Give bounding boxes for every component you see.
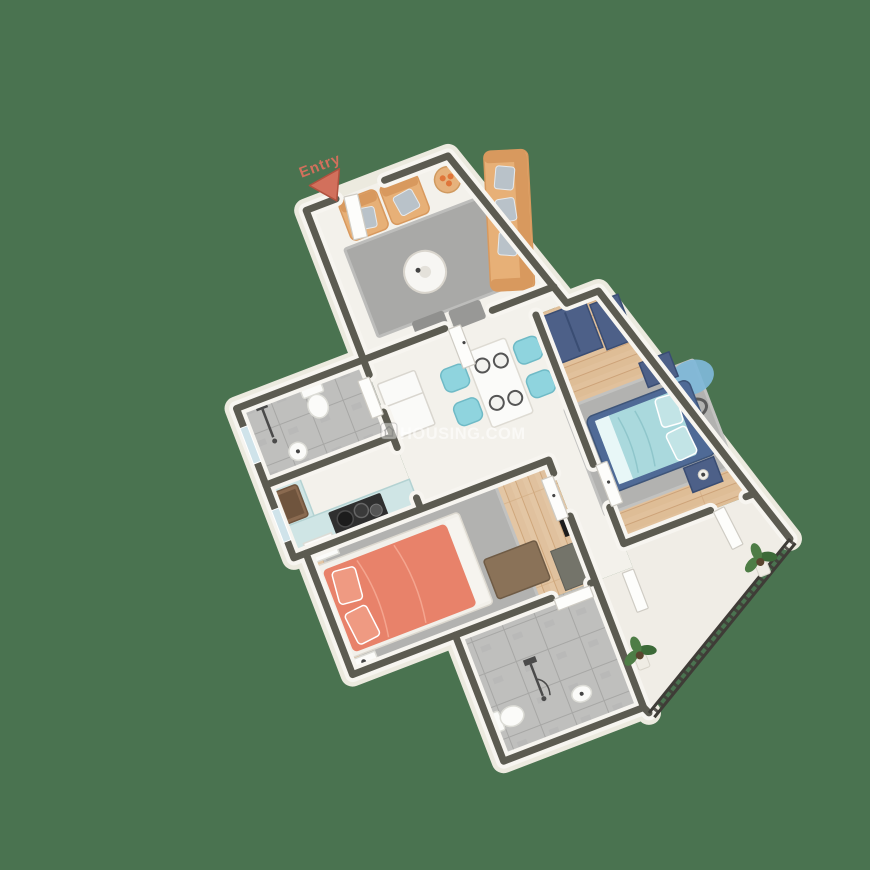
- floorplan-svg: Entry HOUSING.COM: [0, 0, 870, 870]
- floorplan-3d-render: Entry HOUSING.COM: [0, 0, 870, 870]
- watermark-text: HOUSING.COM: [400, 425, 526, 443]
- watermark: HOUSING.COM: [381, 423, 526, 443]
